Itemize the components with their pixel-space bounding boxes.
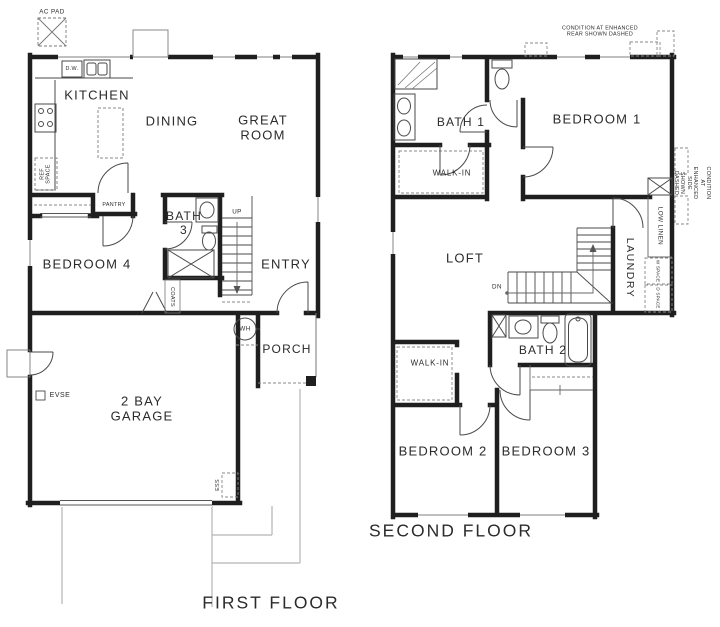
bedroom3-label: BEDROOM 3 <box>502 443 591 458</box>
dining-label: DINING <box>146 113 199 128</box>
porch-post <box>306 376 316 386</box>
evse-label: EVSE <box>50 392 71 400</box>
bath2-vanity <box>509 316 538 338</box>
bath3-label: BATH 3 <box>166 209 202 237</box>
condition-side-note: CONDITION AT ENHANCED SIDE SHOWN DASHED <box>673 167 711 200</box>
entry-label: ENTRY <box>261 256 311 271</box>
second-floor-caption: SECOND FLOOR <box>369 521 533 542</box>
washer-space-label: W SPACE <box>655 260 660 282</box>
evse-outlet <box>36 391 45 400</box>
dn-arrow <box>590 244 597 252</box>
first-floor-caption: FIRST FLOOR <box>202 593 339 614</box>
condition-rear-note: CONDITION AT ENHANCED REAR SHOWN DASHED <box>562 26 638 39</box>
bath1-label: BATH 1 <box>437 115 485 129</box>
bedroom2-label: BEDROOM 2 <box>399 443 488 458</box>
kitchen-island <box>98 108 123 158</box>
garage-label: 2 BAY GARAGE <box>111 394 174 425</box>
stairs-second-floor <box>505 228 613 303</box>
dryer-space-label: D SPACE <box>655 287 660 308</box>
front-door <box>277 282 308 313</box>
bath1-vanity <box>394 94 415 140</box>
walkin1-label: WALK-IN <box>433 168 472 177</box>
loft-label: LOFT <box>446 250 484 265</box>
dishwasher-label: D.W. <box>66 66 79 72</box>
bedroom1-label: BEDROOM 1 <box>553 111 642 126</box>
kitchen-bay-bumpout <box>133 30 168 57</box>
bedroom4-label: BEDROOM 4 <box>43 256 132 271</box>
driveway-lines <box>62 389 300 607</box>
bath1-toilet <box>492 60 512 68</box>
ess-box <box>222 473 238 497</box>
coats-label: COATS <box>169 287 175 307</box>
bath2-label: BATH 2 <box>519 343 567 357</box>
ref-space-label: REF SPACE <box>40 164 53 183</box>
low-linen-label: LOW LINEN <box>656 207 663 245</box>
up-label: UP <box>232 208 242 215</box>
kitchen-label: KITCHEN <box>64 87 129 102</box>
bedroom3-closet <box>530 365 593 395</box>
garage-side-landing <box>7 350 30 377</box>
bedroom4-closet <box>34 205 91 217</box>
dn-label: DN <box>492 283 502 290</box>
laundry-label: LAUNDRY <box>624 238 636 299</box>
first-floor-plan <box>7 18 322 607</box>
porch-label: PORCH <box>262 342 311 356</box>
ac-pad <box>38 18 66 46</box>
ac-pad-label: AC PAD <box>39 8 64 15</box>
wh-label: WH <box>239 325 250 332</box>
ess-label: ESS <box>215 479 221 491</box>
bath1-shower <box>395 59 437 89</box>
range <box>35 104 56 132</box>
pantry-label: PANTRY <box>102 202 125 208</box>
bath2-toilet <box>541 316 559 323</box>
great-room-label: GREAT ROOM <box>238 113 288 144</box>
floor-plan-sheet: AC PAD D.W. KITCHEN DINING GREAT ROOM RE… <box>0 0 720 627</box>
walkin2-label: WALK-IN <box>411 358 450 367</box>
